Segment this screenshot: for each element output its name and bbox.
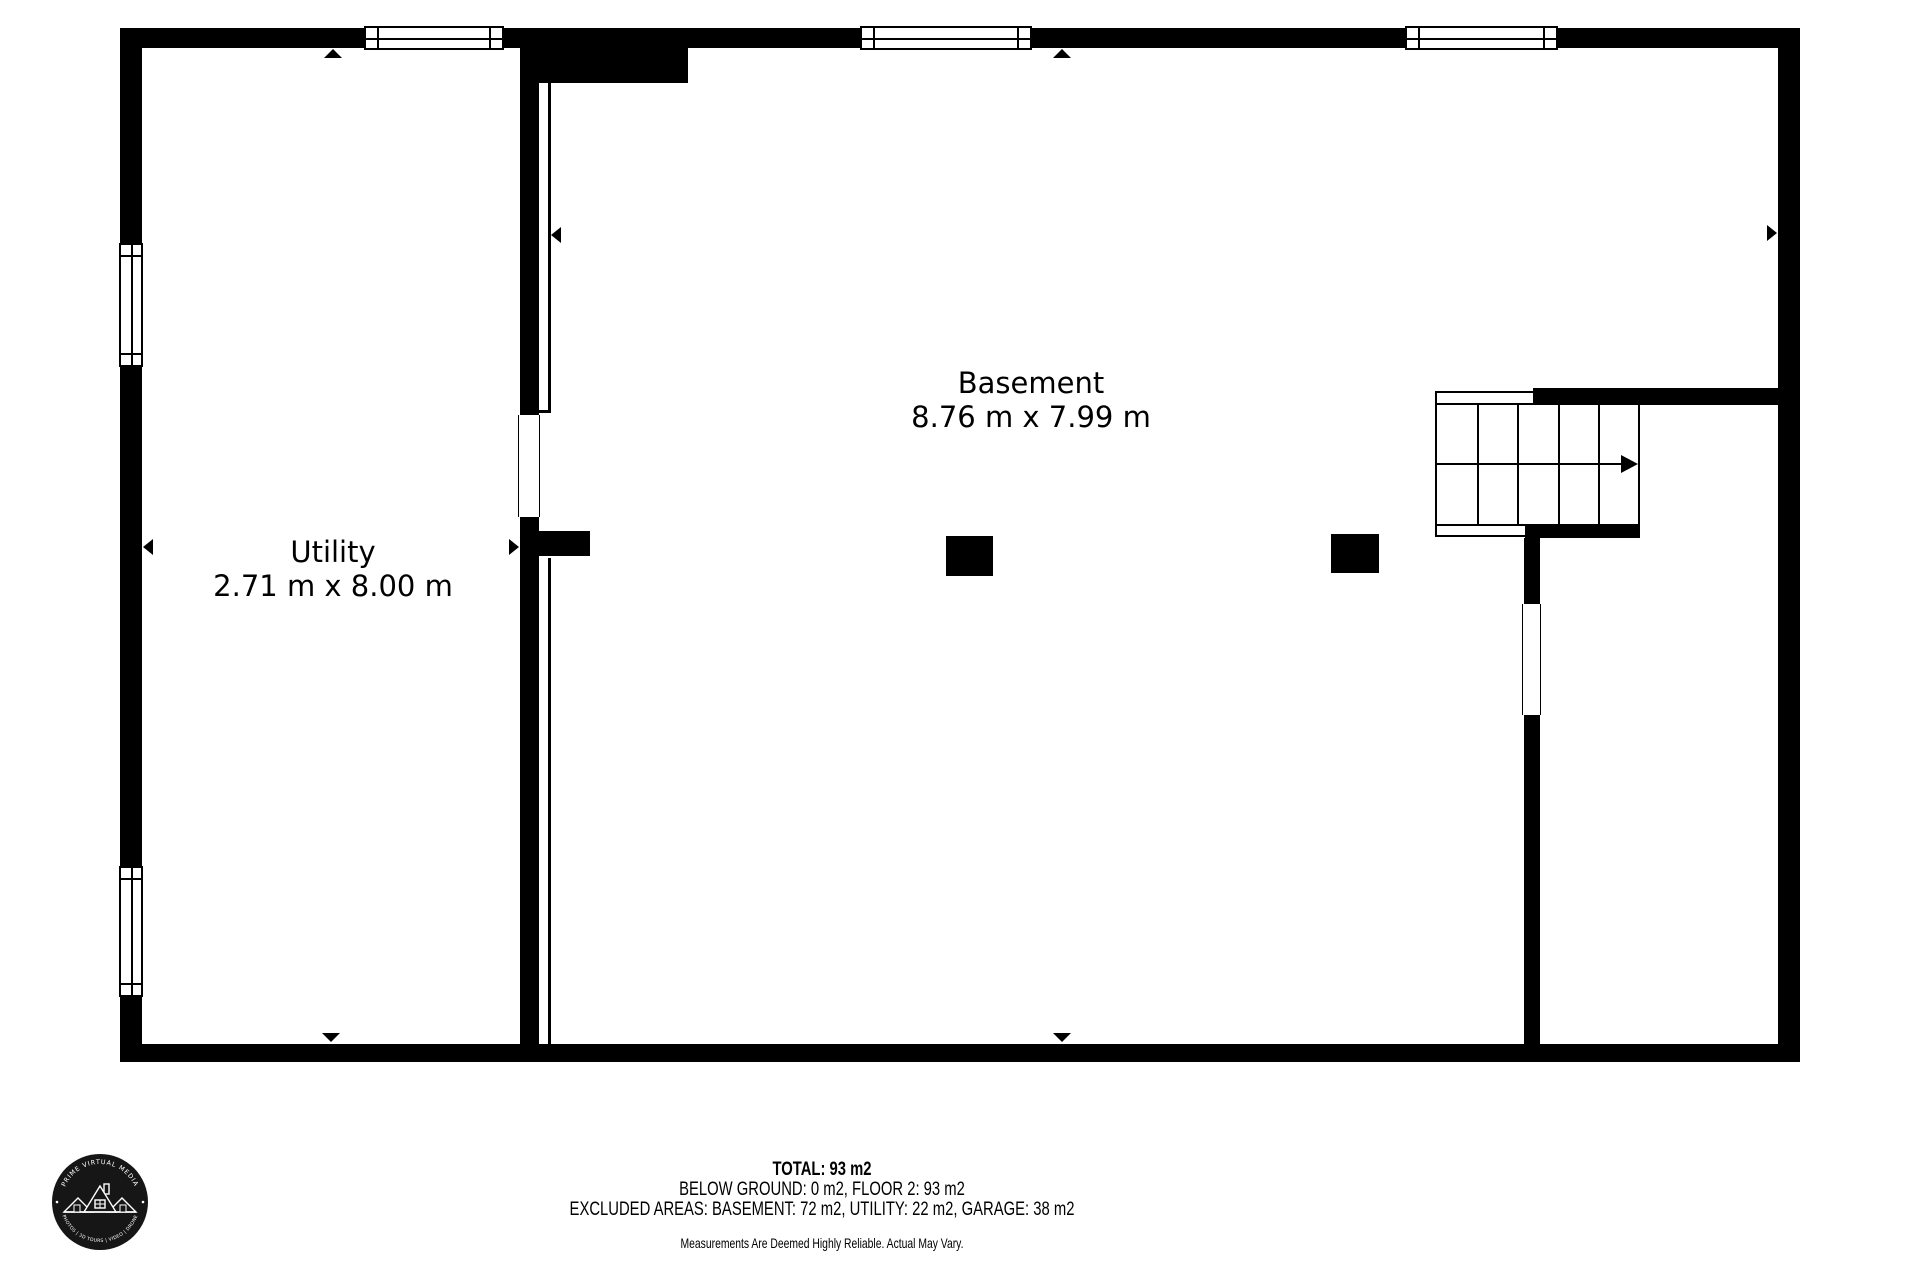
wall-under-stairs xyxy=(1525,524,1640,538)
footer-disclaimer: Measurements Are Deemed Highly Reliable.… xyxy=(214,1236,1431,1251)
door-opening-utility xyxy=(518,415,540,517)
room-dimensions: 2.71 m x 8.00 m xyxy=(33,569,633,603)
logo-side-dot xyxy=(56,1201,59,1204)
door-opening-stairs xyxy=(1522,604,1541,715)
stairs-direction-arrow-icon xyxy=(1621,455,1638,473)
dimension-arrow-up-icon xyxy=(1053,49,1071,58)
wall-thin-line-lower xyxy=(548,558,551,1044)
window xyxy=(119,243,143,367)
window-frame-line xyxy=(489,28,491,48)
dimension-arrow-left-icon xyxy=(551,227,561,243)
logo-svg: PRIME VIRTUAL MEDIA PHOTOS | 3D TOURS | … xyxy=(48,1150,152,1254)
window-frame-line xyxy=(1543,28,1545,48)
window-frame-line xyxy=(1418,28,1420,48)
wall-thin-line-upper xyxy=(548,83,551,412)
dimension-arrow-down-icon xyxy=(322,1033,340,1042)
logo-side-dot xyxy=(142,1201,145,1204)
window-pane-line xyxy=(1407,38,1556,40)
support-column xyxy=(1331,534,1379,573)
window xyxy=(119,866,143,997)
wall-thin-connector xyxy=(539,410,551,413)
dimension-arrow-right-icon xyxy=(1767,225,1777,241)
wall-right xyxy=(1778,28,1800,1062)
room-name: Utility xyxy=(33,535,633,569)
window-frame-line xyxy=(121,353,141,355)
footer-floors: BELOW GROUND: 0 m2, FLOOR 2: 93 m2 xyxy=(181,1180,1463,1200)
wall-divider-header xyxy=(520,48,688,83)
window-frame-line xyxy=(873,28,875,48)
window-frame-line xyxy=(1017,28,1019,48)
room-label-utility: Utility 2.71 m x 8.00 m xyxy=(33,535,633,603)
window xyxy=(1405,26,1558,50)
support-column xyxy=(946,536,993,576)
dimension-arrow-up-icon xyxy=(324,49,342,58)
window-frame-line xyxy=(121,983,141,985)
wall-divider-upper xyxy=(520,48,539,415)
window-pane-line xyxy=(131,245,133,365)
room-dimensions: 8.76 m x 7.99 m xyxy=(731,400,1331,434)
wall-bottom xyxy=(120,1044,1800,1062)
wall-below-stairs-upper xyxy=(1524,538,1540,604)
stair-direction-line xyxy=(1437,463,1622,465)
footer-excluded: EXCLUDED AREAS: BASEMENT: 72 m2, UTILITY… xyxy=(181,1200,1463,1220)
window-frame-line xyxy=(121,878,141,880)
window-frame-line xyxy=(377,28,379,48)
wall-below-stairs-lower xyxy=(1524,715,1540,1044)
window-pane-line xyxy=(131,868,133,995)
window xyxy=(860,26,1032,50)
window-pane-line xyxy=(366,38,502,40)
wall-above-stairs xyxy=(1533,388,1800,405)
window-pane-line xyxy=(862,38,1030,40)
window-frame-line xyxy=(121,255,141,257)
dimension-arrow-down-icon xyxy=(1053,1033,1071,1042)
logo-badge: PRIME VIRTUAL MEDIA PHOTOS | 3D TOURS | … xyxy=(48,1150,152,1258)
floorplan-page: Basement 8.76 m x 7.99 m Utility 2.71 m … xyxy=(0,0,1920,1280)
room-label-basement: Basement 8.76 m x 7.99 m xyxy=(731,366,1331,434)
footer-summary: TOTAL: 93 m2 BELOW GROUND: 0 m2, FLOOR 2… xyxy=(0,1160,1644,1251)
footer-total: TOTAL: 93 m2 xyxy=(181,1160,1463,1180)
staircase xyxy=(1435,391,1640,537)
room-name: Basement xyxy=(731,366,1331,400)
window xyxy=(364,26,504,50)
